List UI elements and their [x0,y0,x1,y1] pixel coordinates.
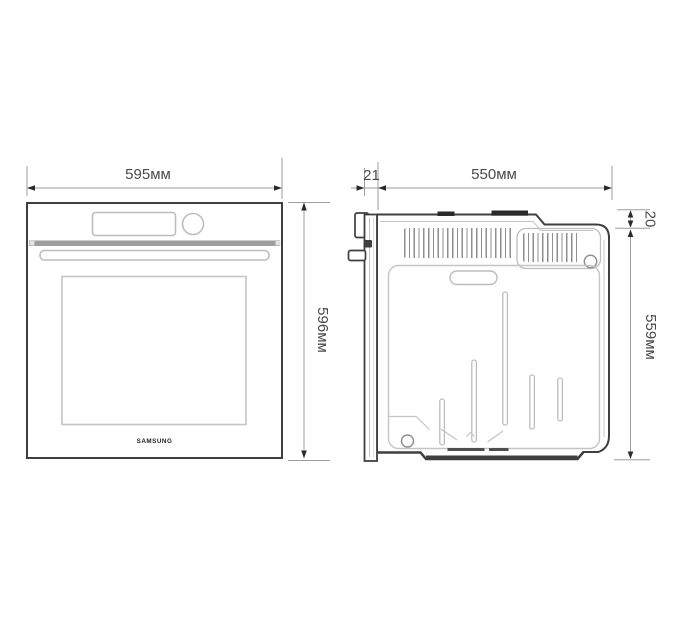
mounting-tab [492,211,529,216]
arrowhead [274,185,282,191]
bottom-dash [489,448,509,451]
side-view: 21 550мм [349,162,660,461]
control-knob [183,214,204,235]
front-width-label: 595мм [125,166,171,183]
side-depth-label: 550мм [471,166,517,183]
panel-ridge [440,399,445,445]
arrowhead [357,185,365,191]
drawing-svg: 595мм SAMSUNG 596мм [0,0,680,630]
front-view: 595мм SAMSUNG 596мм [27,158,331,461]
door-depth-label: 21 [363,167,380,184]
bottom-dash [448,448,485,451]
door-handle-profile [349,251,366,261]
trim-end-cap [276,241,281,246]
side-height-label: 559мм [642,314,659,360]
door-slab [365,215,378,462]
mounting-tab [438,212,455,217]
trim-end-cap [30,241,35,246]
panel-ridge [503,292,508,425]
brand-logo: SAMSUNG [137,438,173,445]
arrowhead [628,230,634,238]
control-display [93,213,176,236]
hinge-block [364,240,373,248]
oven-dimension-diagram: 595мм SAMSUNG 596мм [0,0,680,630]
arrowhead [604,185,612,191]
arrowhead [301,451,307,459]
side-depth-dimensions: 21 550мм [351,162,612,210]
screw-hole [402,435,414,447]
arrowhead [628,452,634,460]
panel-ridge [472,360,477,442]
vent-slots-right-group [523,233,579,262]
panel-pill-emboss [450,271,497,285]
side-height-dimensions: 20 559мм [614,210,659,460]
arrowhead [378,185,386,191]
top-clearance-label: 20 [642,211,659,228]
bottom-foot-band [426,456,578,460]
arrowhead [27,185,35,191]
door-profile [349,213,378,461]
vent-trim-strip [29,241,280,247]
front-height-dimension: 596мм [288,203,331,461]
door-handle [40,251,269,261]
panel-ridge [558,378,563,421]
front-height-label: 596мм [314,307,331,353]
vent-slots-left-group [404,228,514,258]
arrowhead [628,210,634,217]
arrowhead [628,221,634,228]
arrowhead [301,203,307,211]
front-width-dimension: 595мм [27,158,282,199]
panel-ridge [530,375,535,429]
